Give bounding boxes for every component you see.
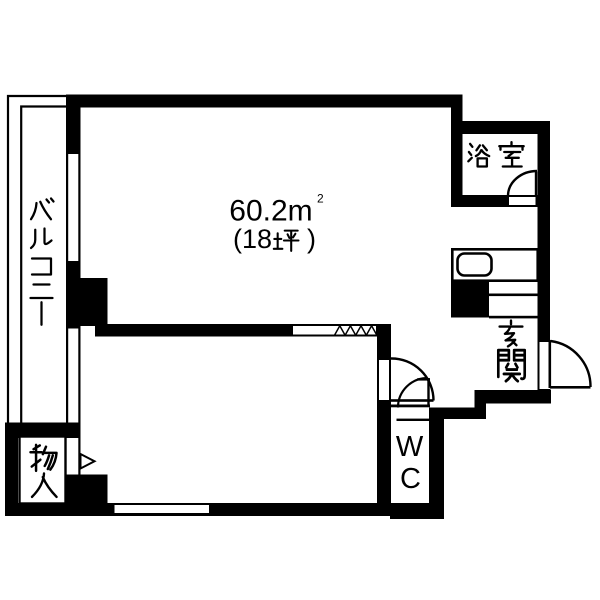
svg-text:2: 2 [317,192,324,206]
svg-text:C: C [400,463,421,495]
svg-text:): ) [307,224,316,254]
svg-text:(18: (18 [233,224,272,254]
svg-text:W: W [396,431,424,463]
svg-text:60.2m: 60.2m [229,195,312,228]
